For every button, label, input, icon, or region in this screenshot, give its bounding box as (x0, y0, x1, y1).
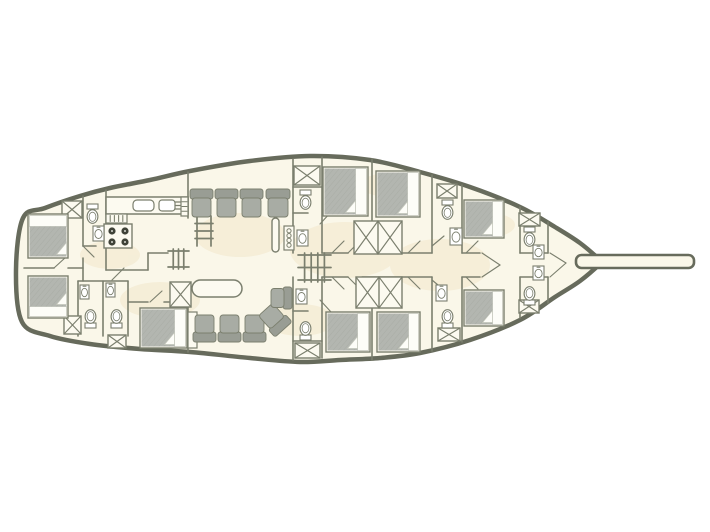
galley-sink (159, 200, 175, 211)
double-bed (464, 200, 504, 238)
seat-cushion (217, 198, 236, 217)
stove-burner-center (124, 230, 126, 232)
hatch-box (519, 213, 540, 226)
washbasin (533, 266, 544, 280)
seat-cushion (220, 315, 239, 333)
hatch-box (64, 316, 81, 334)
paper-stain (390, 239, 490, 291)
seat-back (243, 332, 266, 342)
double-bed (28, 276, 68, 318)
double-bed (140, 308, 187, 348)
double-bed (464, 290, 504, 326)
seat-cushion (271, 289, 284, 308)
stove-burner-center (124, 241, 126, 243)
stove-burner-center (111, 230, 113, 232)
washbasin (93, 226, 104, 241)
stove-burner-center (111, 241, 113, 243)
pillow (30, 216, 67, 227)
hatch-box (437, 184, 457, 198)
pillow (493, 292, 503, 325)
toilet-tank (524, 227, 535, 232)
mast (272, 218, 279, 252)
pillow (493, 202, 503, 237)
pillow (175, 310, 186, 347)
seat-back (218, 332, 241, 342)
salon-seat (193, 315, 216, 342)
salon-seat (190, 189, 213, 217)
boat-deck-plan (0, 0, 710, 532)
hatch-box (354, 221, 402, 254)
pillow (408, 173, 419, 216)
seat-back (266, 189, 290, 199)
hatch-box (356, 277, 402, 308)
salon-seat (215, 189, 238, 217)
seat-back (193, 332, 216, 342)
bowsprit (576, 255, 694, 268)
toilet-tank (300, 190, 311, 195)
boat-deck-plan-stage (0, 0, 710, 532)
seat-cushion (268, 198, 288, 217)
hatch-box (294, 166, 320, 185)
toilet-tank (87, 204, 98, 209)
double-bed (28, 214, 68, 258)
galley-vent (106, 214, 127, 223)
seat-back (240, 189, 263, 199)
vanity-unit (284, 226, 294, 250)
washbasin (80, 285, 89, 299)
toilet (442, 310, 453, 328)
toilet (442, 200, 453, 219)
washbasin (450, 228, 462, 245)
toilet-tank (442, 200, 453, 205)
washbasin (106, 283, 115, 297)
double-bed (323, 167, 368, 216)
washbasin (296, 289, 307, 304)
pillow (358, 314, 369, 351)
double-bed (376, 171, 420, 217)
galley-sink (133, 200, 154, 211)
stove (104, 224, 132, 248)
toilet (87, 204, 98, 223)
hatch-box (438, 328, 460, 341)
seat-cushion (192, 198, 211, 217)
hatch-box (170, 282, 191, 307)
salon-seat (240, 189, 263, 217)
washbasin (436, 285, 447, 301)
armchair (271, 287, 292, 309)
seat-cushion (195, 315, 214, 333)
hatch-box (295, 343, 320, 358)
washbasin (533, 245, 544, 259)
salon-table (192, 280, 242, 297)
cabinet (181, 197, 188, 216)
double-bed (377, 312, 420, 352)
pillow (30, 307, 67, 317)
toilet (85, 310, 96, 328)
hatch-box (108, 335, 126, 348)
pillow (409, 314, 419, 351)
salon-seat (218, 315, 241, 342)
washbasin (297, 230, 308, 246)
toilet (300, 322, 311, 340)
seat-back (190, 189, 213, 199)
seat-cushion (242, 198, 261, 217)
double-bed (326, 312, 370, 352)
pillow (356, 169, 367, 215)
toilet (524, 287, 535, 305)
salon-seat (266, 189, 290, 217)
toilet (111, 310, 122, 328)
seat-back (215, 189, 238, 199)
toilet (524, 227, 535, 246)
toilet (300, 190, 311, 209)
